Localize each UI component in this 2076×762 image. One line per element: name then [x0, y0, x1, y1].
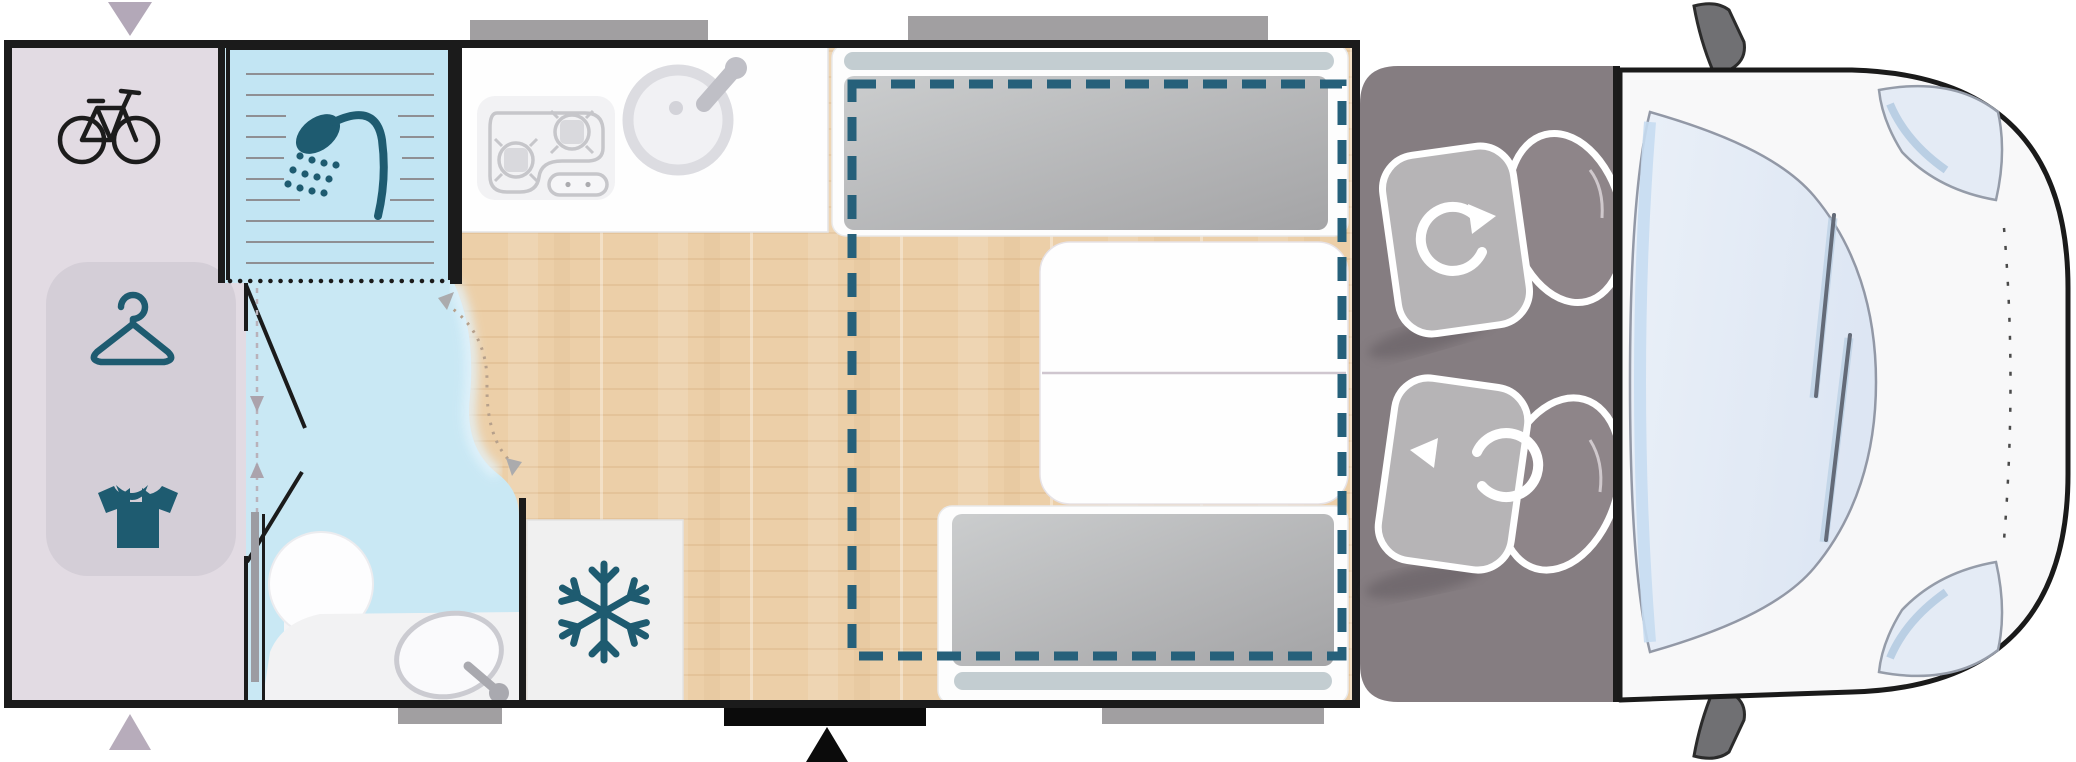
window-bottom-dinette: [1102, 707, 1324, 724]
vehicle-front-block: [1620, 4, 2068, 759]
window-bottom-bath: [398, 707, 502, 724]
front-bench: [832, 44, 1348, 236]
cab-block: [1360, 66, 1641, 702]
floorplan-canvas: [0, 0, 2076, 762]
shower-kitchen-wall: [450, 44, 462, 284]
shower-tray: [228, 48, 450, 281]
mirror-top: [1694, 4, 1744, 71]
window-top-dinette: [908, 16, 1268, 41]
garage-arrow-bottom: [109, 714, 151, 750]
driver-seat-cushion: [1378, 142, 1534, 339]
garage-shower-wall: [218, 44, 225, 283]
entry-arrow: [806, 727, 848, 762]
floorplan-page: [0, 0, 2076, 762]
refrigerator: [527, 520, 683, 704]
front-bench-pillow: [844, 52, 1334, 70]
garage-arrow-top: [108, 2, 152, 36]
entry-door-step: [724, 705, 926, 726]
rear-bench-cushion: [952, 514, 1334, 666]
rear-bench: [938, 506, 1348, 704]
passenger-seat-cushion: [1374, 374, 1532, 575]
window-top-kitchen: [470, 20, 708, 41]
two-burner-hob: [477, 96, 615, 200]
front-bench-cushion: [844, 76, 1328, 230]
rear-bench-pillow: [954, 672, 1332, 690]
mirror-bottom: [1694, 691, 1744, 758]
bath-fridge-wall: [519, 498, 526, 704]
table: [1040, 242, 1348, 504]
